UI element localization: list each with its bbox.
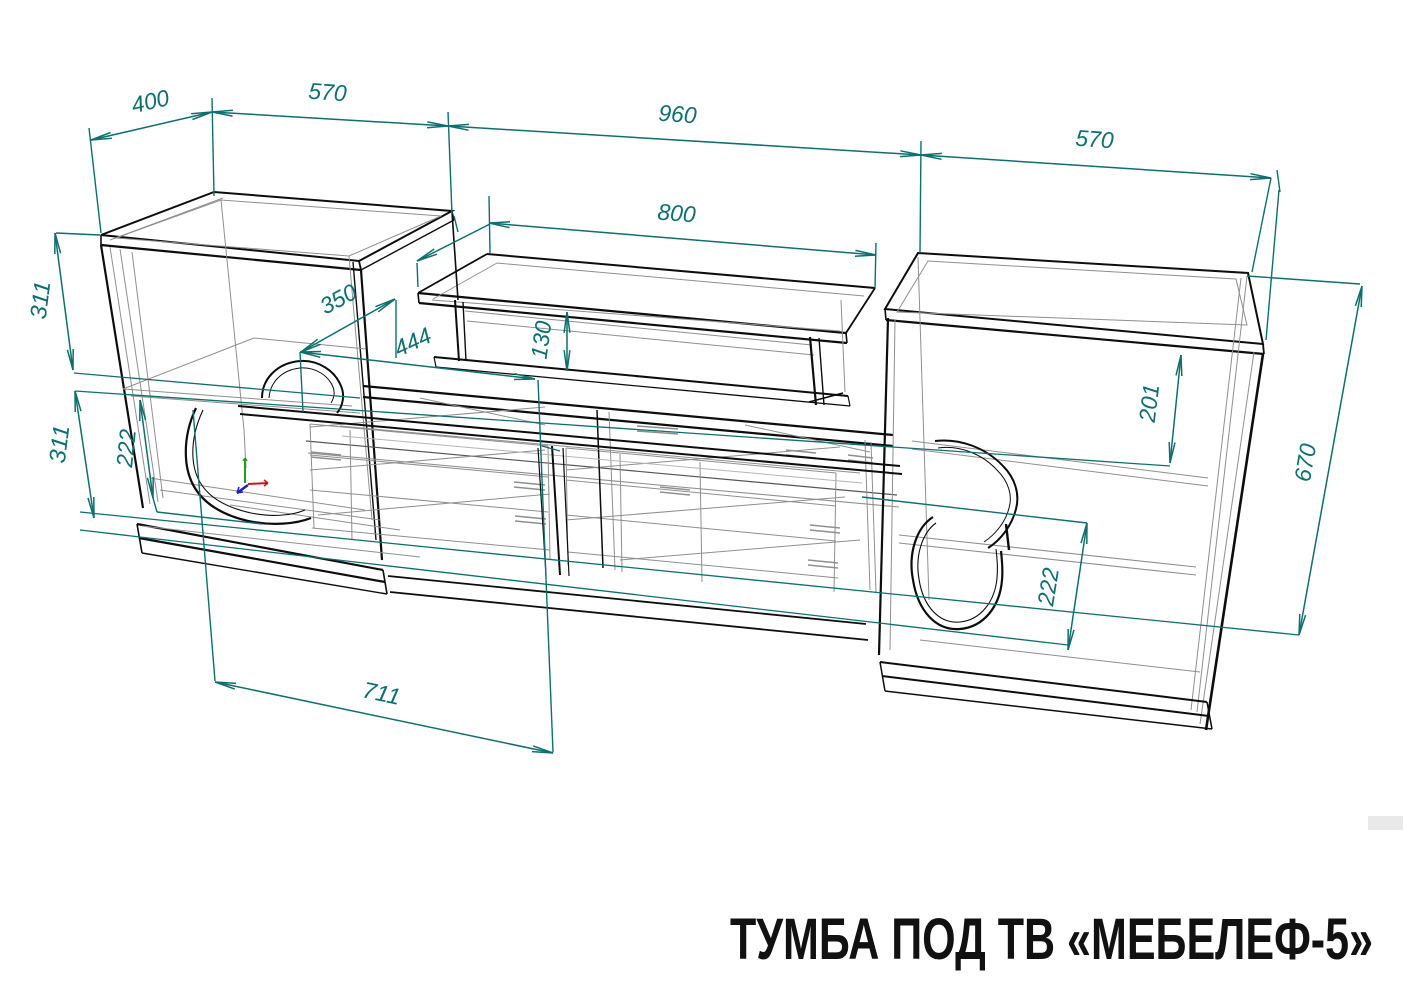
svg-text:222: 222 bbox=[111, 428, 141, 470]
svg-text:444: 444 bbox=[390, 322, 435, 362]
svg-text:ТУМБА ПОД ТВ «МЕБЕЛЕФ-5»: ТУМБА ПОД ТВ «МЕБЕЛЕФ-5» bbox=[730, 907, 1373, 972]
svg-text:800: 800 bbox=[657, 199, 697, 228]
svg-text:311: 311 bbox=[44, 424, 74, 465]
svg-text:711: 711 bbox=[360, 677, 403, 710]
svg-text:400: 400 bbox=[129, 84, 172, 118]
svg-text:311: 311 bbox=[25, 280, 55, 321]
svg-text:960: 960 bbox=[658, 100, 698, 129]
svg-text:201: 201 bbox=[1134, 383, 1165, 425]
svg-text:222: 222 bbox=[1032, 566, 1064, 609]
svg-text:570: 570 bbox=[308, 78, 348, 107]
svg-text:670: 670 bbox=[1289, 441, 1321, 483]
svg-text:130: 130 bbox=[526, 319, 557, 360]
svg-text:570: 570 bbox=[1075, 125, 1115, 154]
